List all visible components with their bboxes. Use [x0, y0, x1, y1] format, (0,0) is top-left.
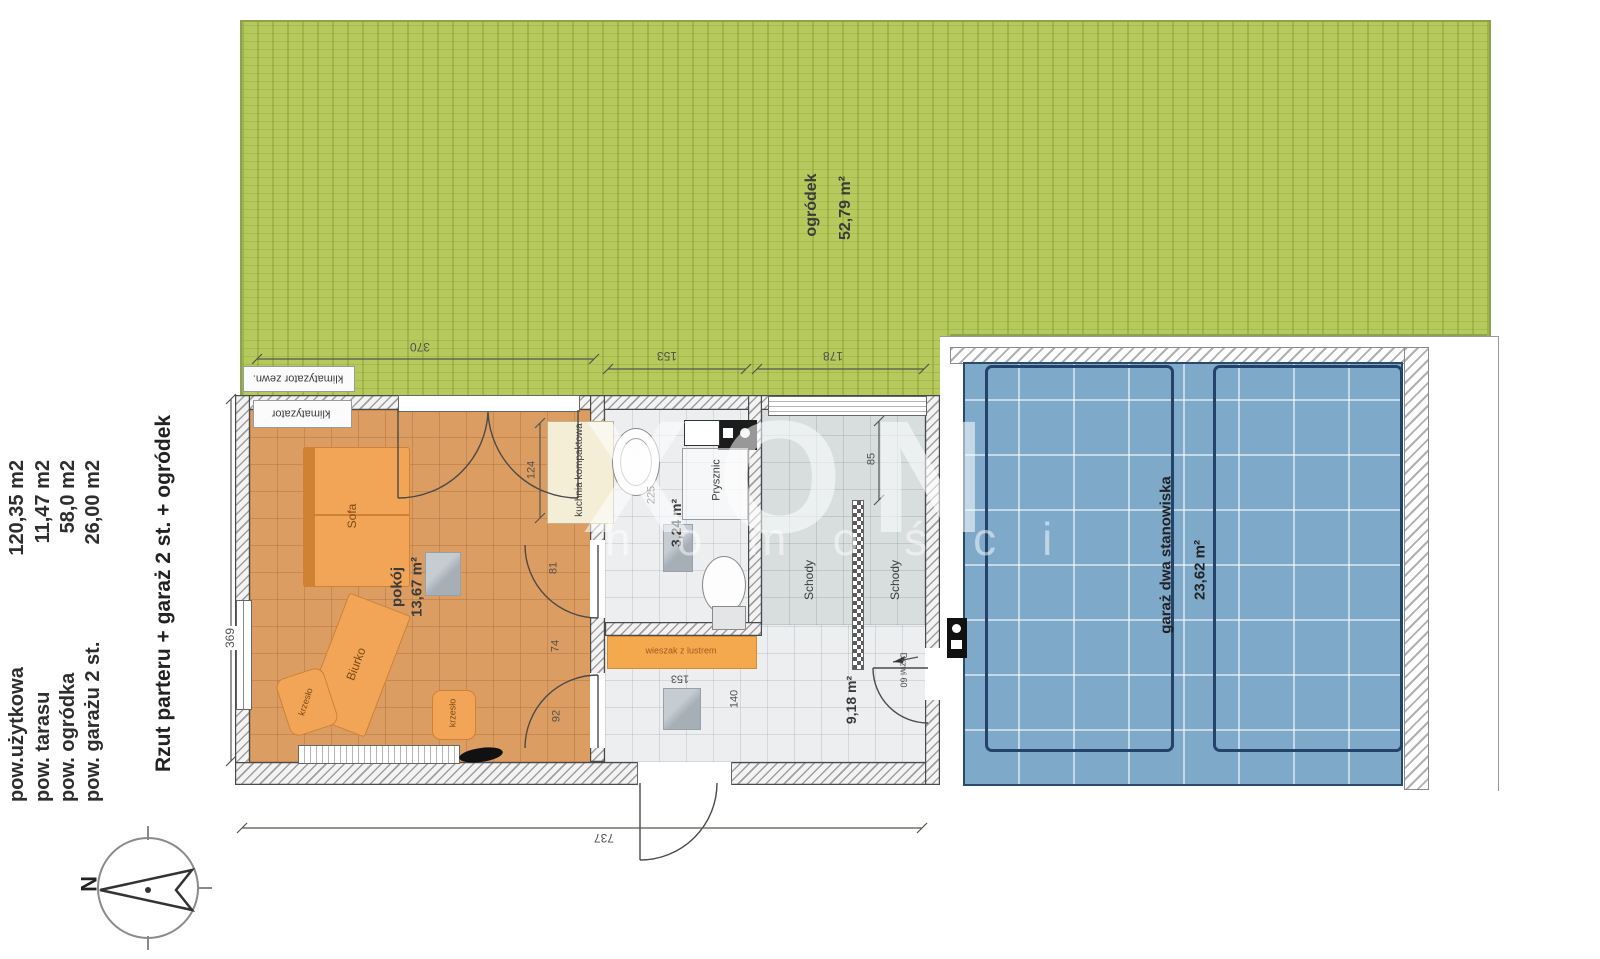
dim-seg-81: 81 — [549, 562, 560, 574]
ac-indoor-label: klimatyzator — [272, 408, 331, 419]
dim-room-height: 369 — [223, 626, 237, 650]
dim-garden-width: 370 — [410, 341, 430, 353]
entry-door-arc — [640, 783, 717, 860]
sofa-label: Sofa — [346, 504, 358, 529]
dim-bath-height: 225 — [647, 486, 658, 504]
summary-row-4: pow. garażu 2 st. 26,00 m2 — [82, 460, 108, 802]
summary-value: 11,47 m2 — [32, 460, 58, 543]
summary-value: 120,35 m2 — [6, 460, 32, 556]
room-door-arc-1 — [525, 545, 598, 618]
room-label: pokój — [390, 567, 405, 607]
garage-area-label: 23,62 m² — [1193, 540, 1208, 600]
summary-label: pow. garażu 2 st. — [82, 642, 108, 802]
hanger-label: wieszak z lustrem — [645, 647, 716, 656]
dim-bath-top: 153 — [657, 350, 677, 362]
floor-plan-canvas: N pow.użytkowa 120,35 m2 pow. tarasu 11,… — [0, 0, 1600, 959]
garage-door-label: Drzwi 60 — [899, 652, 908, 687]
dim-hall-140: 140 — [730, 690, 741, 708]
summary-label: pow.użytkowa — [6, 667, 32, 802]
dim-stairs-85: 85 — [867, 453, 878, 465]
dim-hall-153: 153 — [671, 673, 689, 684]
garage-label: garaż dwa stanowiska — [1159, 476, 1174, 634]
summary-value: 58,0 m2 — [57, 460, 83, 533]
room-area-label: 13,67 m² — [410, 557, 425, 617]
garden-area-label: 52,79 m² — [838, 176, 854, 240]
plan-title: Rzut parteru + garaż 2 st. + ogródek — [152, 410, 176, 772]
hall-area-label: 9,18 m² — [844, 676, 858, 724]
dim-kitchen: 124 — [527, 461, 538, 479]
dim-stairs-top: 178 — [823, 350, 843, 362]
chair-2-label: krzesło — [449, 699, 458, 728]
bathroom-area-label: 3,24 m² — [669, 499, 683, 547]
compass — [20, 808, 280, 959]
summary-value: 26,00 m2 — [82, 460, 108, 545]
ac-outdoor-label: klimatyzator zewn. — [253, 373, 343, 384]
dim-seg-74: 74 — [551, 640, 562, 652]
dim-door-92: 92 — [552, 710, 563, 722]
garden-label: ogródek — [804, 173, 820, 236]
garden-door-arc — [398, 410, 578, 498]
shower-label: Prysznic — [712, 459, 723, 501]
dim-house-width: 737 — [594, 832, 614, 844]
summary-label: pow. ogródka — [57, 673, 83, 802]
summary-row-2: pow. tarasu 11,47 m2 — [32, 460, 58, 802]
compass-north-label: N — [77, 876, 99, 892]
summary-row-1: pow.użytkowa 120,35 m2 — [6, 460, 32, 802]
summary-row-3: pow. ogródka 58,0 m2 — [57, 460, 83, 802]
summary-label: pow. tarasu — [32, 692, 58, 802]
stairs-label-2: Schody — [889, 560, 901, 600]
stairs-label-1: Schody — [803, 560, 815, 600]
kitchen-label: kuchnia kompaktowa — [575, 423, 585, 516]
